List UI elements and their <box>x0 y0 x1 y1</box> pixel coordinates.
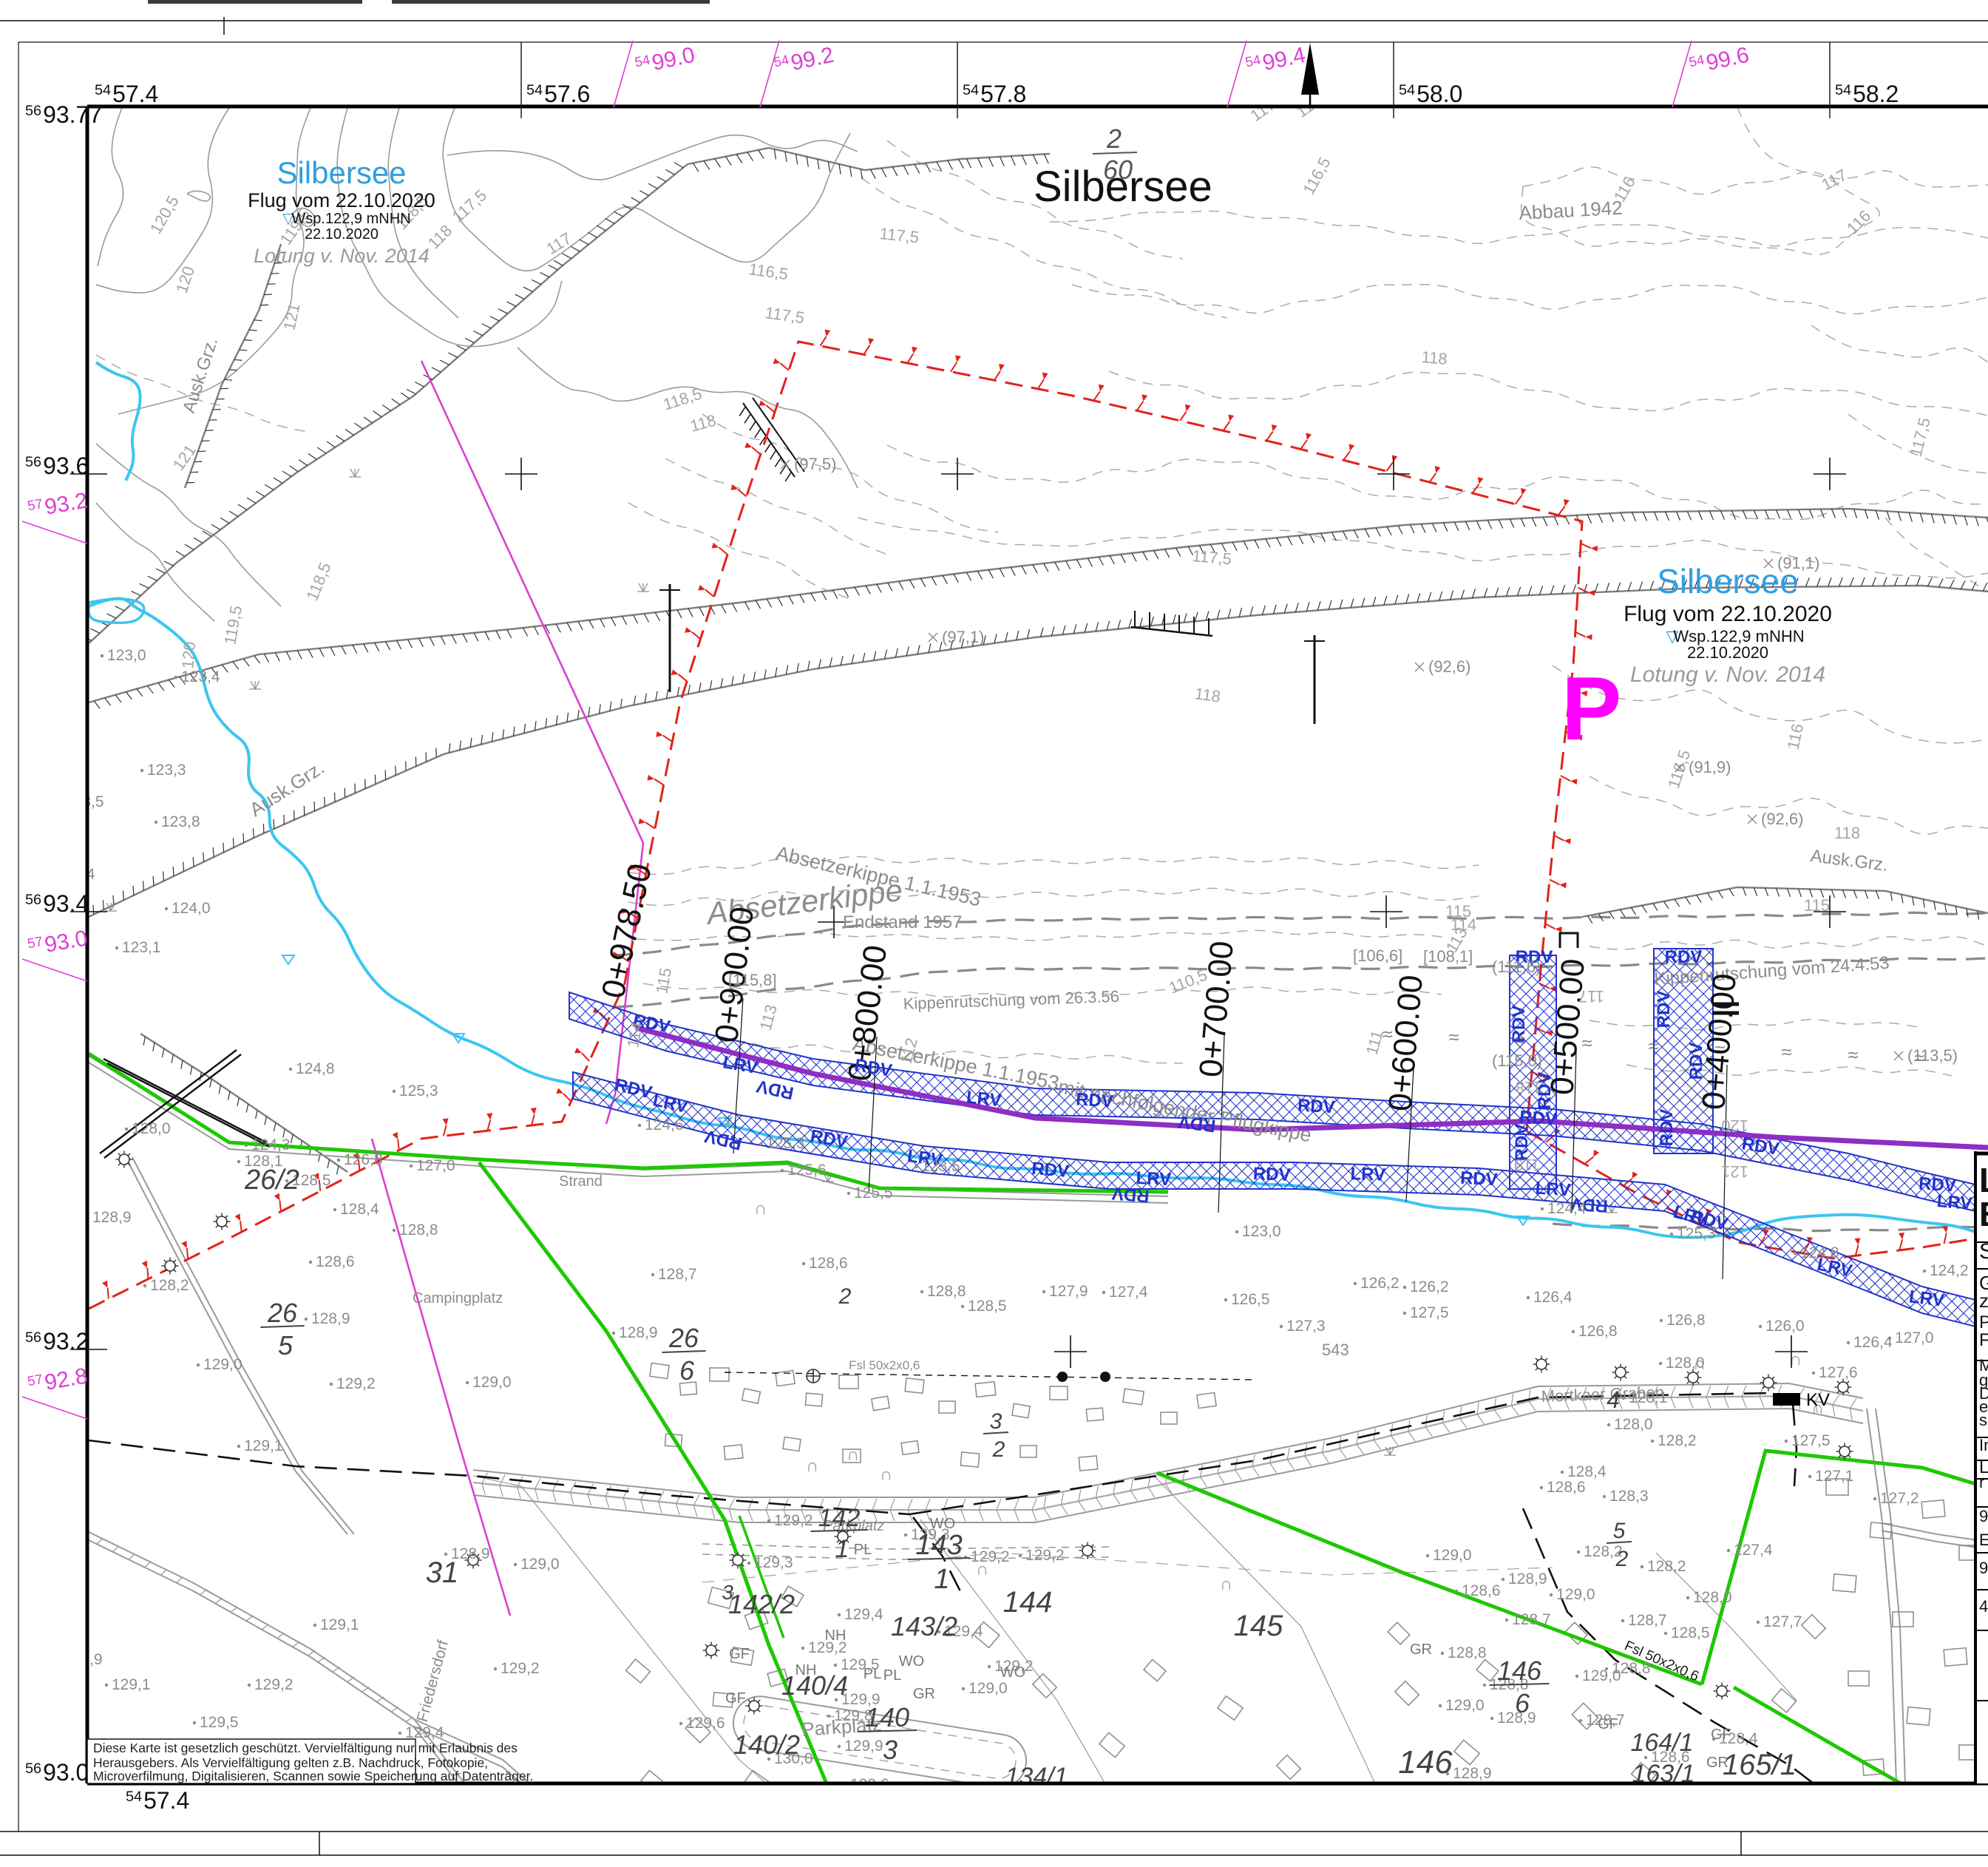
parcel-number: 3 <box>990 1409 1003 1434</box>
area-label: Strand <box>559 1173 603 1190</box>
band-label: RDV <box>1075 1089 1113 1111</box>
spot-height: 128,6 <box>316 1253 355 1270</box>
area-label: Fsl 50x2x0,6 <box>849 1358 920 1372</box>
title-block-fragment: P <box>1979 1312 1988 1332</box>
title-block-fragment: z <box>1979 1290 1988 1312</box>
station-label: 0+978.50 <box>595 861 659 1002</box>
grid-coordinate: 5792.8 <box>26 1363 89 1398</box>
water-level-date: 22.10.2020 <box>1687 643 1768 662</box>
spot-height: 127,4 <box>1109 1284 1148 1301</box>
spot-height: 127,3 <box>1286 1318 1326 1335</box>
area-label: 543 <box>1322 1341 1349 1359</box>
title-block-fragment: S <box>1979 1239 1988 1264</box>
title-block-fragment: s <box>1979 1411 1987 1429</box>
title-block-fragment: In <box>1979 1436 1988 1454</box>
parcel-number: 4 <box>1607 1386 1620 1413</box>
spot-height: 125,3 <box>399 1082 438 1099</box>
band-label: LRV <box>966 1088 1003 1111</box>
parcel-number: 2 <box>838 1284 852 1309</box>
contour-label: 120 <box>172 264 198 296</box>
water-level: Wsp.122,9 mNHN <box>291 211 410 227</box>
landuse-code: NH <box>866 1836 888 1852</box>
parcel-denominator: 2 <box>992 1437 1005 1462</box>
band-label: RDV <box>1297 1096 1335 1118</box>
water-level-date: 22.10.2020 <box>305 226 379 243</box>
spot-height: 129,9 <box>844 1738 883 1755</box>
elevation-point: (97,1) <box>942 628 984 646</box>
landuse-code: GF <box>729 1646 750 1662</box>
parcel-number: 146 <box>1398 1744 1453 1780</box>
spot-height: 129,2 <box>336 1375 376 1392</box>
spot-height: 128,6 <box>809 1255 848 1272</box>
title-block-fragment: L <box>1979 1161 1988 1199</box>
contour-label: 118,5 <box>302 560 334 603</box>
band-label: RDV <box>1657 1109 1677 1147</box>
area-label: Abbau 1942 <box>1519 197 1624 224</box>
spot-height: 126,2 <box>1360 1275 1400 1292</box>
spot-height: 128,2 <box>1647 1558 1686 1575</box>
kv-label: KV <box>1806 1390 1830 1410</box>
spot-height: 127,7 <box>1763 1613 1802 1630</box>
contour-label: 120 <box>178 641 199 670</box>
band-label: LRV <box>1936 1191 1973 1214</box>
spot-height: 128,9 <box>619 1324 658 1341</box>
grid-coordinate-row: 5693.77 <box>25 101 102 128</box>
band-label: RDV <box>1654 991 1674 1029</box>
svg-text:∩: ∩ <box>754 1199 767 1219</box>
fraction-bar <box>1093 152 1137 154</box>
area-label: Kippenrutschung vom 26.3.56 <box>903 987 1119 1013</box>
parcel-number: 26 <box>668 1323 699 1353</box>
elevation-point: (113,5) <box>1907 1046 1958 1065</box>
contour-label: 118 <box>1834 824 1860 842</box>
parcel-number: 31 <box>426 1556 459 1589</box>
contour-label: 117,5 <box>764 303 805 327</box>
grid-coordinate: 5458.0 <box>1399 81 1462 107</box>
band-label: RDV <box>1512 1124 1532 1162</box>
svg-text:∩: ∩ <box>806 1456 818 1476</box>
spot-height: 128,3 <box>1609 1488 1649 1505</box>
band-label: RDV <box>1509 1006 1529 1043</box>
spot-height: 128,9 <box>311 1310 350 1327</box>
contour-label: 117,5 <box>1907 416 1934 458</box>
spot-height: 128,0 <box>132 1120 171 1137</box>
parcel-number: 146 <box>804 1795 853 1827</box>
spot-height: 128,1 <box>1629 1389 1668 1406</box>
spot-height: 125,6 <box>787 1162 827 1179</box>
lake-title: Silbersee <box>1657 562 1799 600</box>
title-block-fragment: 9 <box>1979 1559 1988 1577</box>
grid-coordinate: 5793.2 <box>26 488 89 523</box>
band-label: LRV <box>1136 1168 1172 1190</box>
grid-coordinate: 5499.2 <box>772 42 835 79</box>
band-label: LRV <box>1350 1164 1385 1185</box>
elevation-point: [106,6] <box>1353 946 1402 965</box>
parcel-number: 143 <box>915 1530 962 1561</box>
spot-height: 127,0 <box>1895 1329 1934 1346</box>
spot-height: 129,1 <box>320 1616 359 1633</box>
spot-height: 129,4 <box>844 1606 883 1623</box>
contour-label: 111 <box>1363 1029 1387 1057</box>
spot-height: 126,8 <box>1666 1312 1706 1329</box>
contour-label: 121 <box>169 441 200 473</box>
spot-height: 126,4 <box>1533 1289 1573 1306</box>
grid-coordinate: 5693.4 <box>25 890 89 917</box>
elevation-point: (92,6) <box>1428 657 1470 676</box>
parcel-denominator: 2 <box>1615 1547 1629 1571</box>
spot-height: 127,9 <box>1049 1283 1088 1300</box>
spot-height: 128,8 <box>927 1283 966 1300</box>
grid-coordinate: 5457.4 <box>95 81 158 107</box>
spot-height: 123,1 <box>122 939 161 956</box>
spot-height: 129,0 <box>1433 1547 1472 1564</box>
spot-height: 125,3 <box>1677 1225 1716 1242</box>
spot-height: 126,4 <box>1853 1334 1893 1351</box>
spot-height: 128,4 <box>1567 1463 1607 1480</box>
spot-height: 125,3 <box>766 1135 805 1152</box>
landuse-code: LH <box>1172 1790 1191 1806</box>
spot-height: 128,0 <box>1666 1355 1705 1372</box>
copyright-line: Microverfilmung, Digitalisieren, Scannen… <box>93 1769 533 1783</box>
top-artifact-strip <box>148 0 362 4</box>
contour-label: 115 <box>1804 896 1830 915</box>
contour-label: 117,5 <box>449 186 490 226</box>
lake-title: Silbersee <box>277 155 406 190</box>
spot-height: 128,9 <box>92 1209 132 1226</box>
station-label: 0+600.00 <box>1382 974 1430 1113</box>
parcel-number: 165/1 <box>1723 1749 1797 1781</box>
parcel-number: 146 <box>1497 1656 1542 1686</box>
grid-coordinate: 5457.6 <box>526 81 590 107</box>
elevation-point: [115,8] <box>728 971 777 989</box>
area-label: Ausk.Grz. <box>1809 846 1889 875</box>
parcel-denominator: 6 <box>679 1355 695 1386</box>
spot-height: 128,2 <box>1658 1432 1697 1449</box>
svg-text:≈: ≈ <box>1448 1026 1459 1048</box>
grid-coordinate: 5458.2 <box>1835 81 1899 107</box>
grid-coordinate: 5693.6 <box>25 453 89 479</box>
spot-height: 129,0 <box>203 1356 242 1373</box>
parcel-number: 5 <box>1613 1519 1626 1543</box>
parcel-number: 3 <box>722 1581 733 1604</box>
contour-label: 117,5 <box>1192 546 1232 569</box>
parcel-number: 164/1 <box>1630 1729 1693 1757</box>
grid-coordinate: 5793.0 <box>26 926 89 960</box>
spot-height: 128,6 <box>1547 1479 1586 1496</box>
parcel-denominator: 1 <box>835 1535 849 1563</box>
spot-height: 129,3 <box>754 1554 793 1571</box>
spot-height: 127,1 <box>1815 1468 1854 1485</box>
grid-coordinate: 5693.2 <box>25 1328 89 1355</box>
sounding-note: Lotung v. Nov. 2014 <box>1630 663 1825 687</box>
spot-height: 129,2 <box>1025 1547 1065 1564</box>
spot-height: 124,2 <box>1930 1262 1969 1279</box>
grid-coordinate: 5499.4 <box>1244 42 1307 79</box>
parcel-number: 143/2 <box>891 1611 957 1641</box>
svg-text:∩: ∩ <box>880 1465 892 1485</box>
spot-height: 129,0 <box>1582 1667 1621 1684</box>
spot-height: 129,2 <box>994 1658 1034 1675</box>
spot-height: 129,2 <box>774 1512 813 1529</box>
spot-height: 124,0 <box>172 900 211 917</box>
spot-height: 123,3 <box>147 762 186 779</box>
spot-height: 129,6 <box>686 1715 725 1732</box>
contour-label: 120,5 <box>146 192 183 237</box>
headline-fraction-bottom: 60 <box>1103 155 1133 185</box>
spot-height: 123,0 <box>107 647 146 664</box>
band-label: RDV <box>1252 1164 1291 1185</box>
area-label: Endstand 1957 <box>843 912 962 932</box>
contour-label: 117 <box>543 228 574 258</box>
parcel-denominator: 1 <box>934 1564 949 1595</box>
landuse-code: WO <box>899 1653 924 1670</box>
spot-height: 124,8 <box>1800 1244 1839 1261</box>
spot-height: 128,2 <box>150 1277 189 1294</box>
spot-height: 126,8 <box>344 1151 383 1168</box>
spot-height: 128,5 <box>968 1298 1007 1315</box>
spot-height: 129,2 <box>501 1660 540 1677</box>
spot-height: 123,4 <box>181 668 220 685</box>
spot-height: 129,0 <box>968 1680 1008 1697</box>
contour-label: 114 <box>623 1020 646 1049</box>
contour-label: 115 <box>652 966 675 995</box>
spot-height: 128,4 <box>1719 1730 1758 1747</box>
spot-height: 126,0 <box>1765 1318 1805 1335</box>
contour-label: 113 <box>756 1003 781 1032</box>
spot-height: 127,4 <box>1734 1542 1773 1559</box>
spot-height: 128,7 <box>1512 1611 1551 1628</box>
contour-label: 119 <box>1514 1156 1540 1174</box>
svg-text:∩: ∩ <box>651 1783 663 1803</box>
spot-height: 125,5 <box>854 1185 893 1202</box>
elevation-point: (111,6) <box>1492 958 1541 976</box>
copyright-line: Diese Karte ist gesetzlich geschützt. Ve… <box>93 1741 518 1755</box>
parcel-denominator: 6 <box>1515 1688 1530 1718</box>
map-canvas[interactable]: ≈≈≈≈≈≈≈≈≈∩∩∩∩∩∩∩∩∩∩Absetzerkippe 1.1.195… <box>0 0 1988 1867</box>
elevation-point: (91,9) <box>1689 758 1731 776</box>
parcel-denominator: 3 <box>883 1735 898 1765</box>
spot-height: 123,8 <box>161 813 200 830</box>
svg-text:∩: ∩ <box>847 1445 859 1465</box>
contour-label: 118 <box>1516 1078 1541 1097</box>
parcel-number: 134/1 <box>1005 1763 1068 1791</box>
spot-height: 123,5 <box>921 1158 960 1175</box>
elevation-point: (115,0) <box>1492 1051 1542 1070</box>
spot-height: 129,0 <box>1556 1586 1595 1603</box>
contour-label: 117 <box>1578 987 1604 1006</box>
spot-height: 126,8 <box>1578 1323 1618 1340</box>
spot-height: 124,6 <box>645 1117 684 1134</box>
elevation-point: (97,5) <box>794 455 836 473</box>
landuse-code: PL <box>883 1667 901 1684</box>
landuse-code: GR <box>913 1686 935 1702</box>
parcel-denominator: 5 <box>278 1330 294 1361</box>
spot-height: 128,7 <box>658 1266 697 1283</box>
contour-label: 121 <box>1721 1162 1748 1181</box>
contour-label: 116 <box>1783 722 1807 752</box>
grid-coordinate: 5457.8 <box>963 81 1026 107</box>
parcel-number: 26 <box>267 1298 298 1328</box>
contour-label: 116,5 <box>1299 154 1334 197</box>
spot-height: 128,8 <box>1448 1644 1487 1661</box>
spot-height: 128,8 <box>399 1221 438 1239</box>
silbersee-legend-east: Silbersee Flug vom 22.10.2020 ▽ Wsp.122,… <box>1624 562 1832 687</box>
spot-height: 128,6 <box>1462 1582 1501 1599</box>
band-label: RDV <box>1665 947 1703 967</box>
map-content: ≈≈≈≈≈≈≈≈≈∩∩∩∩∩∩∩∩∩∩Absetzerkippe 1.1.195… <box>46 87 1988 1867</box>
landuse-code: GF <box>725 1690 746 1707</box>
landuse-code: PL <box>854 1542 872 1558</box>
contour-label: 120 <box>1721 1117 1748 1135</box>
grid-coordinate-row: 5693.0 <box>25 1759 89 1786</box>
title-block-fragment: B <box>1979 1195 1988 1233</box>
spot-height: 128,9 <box>1453 1765 1492 1782</box>
p-marker: P <box>1561 658 1621 759</box>
spot-height: 129,9 <box>64 1651 103 1668</box>
title-block-sliver: LBSGzPFMgDesInLr9E94 <box>1975 1151 1988 1783</box>
parcel-number: 142 <box>818 1504 861 1532</box>
parcel-number: 140/2 <box>733 1729 800 1760</box>
spot-height: 123,5 <box>65 793 104 810</box>
spot-height: 129,0 <box>472 1374 512 1391</box>
grid-coordinate: 5499.0 <box>633 42 696 79</box>
contour-label: 117,5 <box>878 224 920 246</box>
spot-height: 129,2 <box>254 1676 294 1693</box>
title-block-fragment: F <box>1979 1330 1988 1350</box>
contour-label: 116 <box>1843 206 1874 237</box>
spot-height: 129,2 <box>808 1639 847 1656</box>
grid-coordinate: 5693.77 <box>25 101 102 128</box>
spot-height: 127,2 <box>1880 1490 1919 1507</box>
spot-height: 127,5 <box>1410 1304 1449 1321</box>
band-label: RDV <box>1031 1159 1070 1182</box>
spot-height: 128,4 <box>340 1201 379 1218</box>
landuse-code: GR <box>1410 1641 1432 1658</box>
top-artifact-strip <box>392 0 710 4</box>
station-label: 0+700.00 <box>1193 940 1241 1079</box>
spot-height: 129,1 <box>244 1437 283 1454</box>
spot-height: 128,0 <box>1693 1589 1732 1606</box>
parcel-number: 141 <box>1177 1792 1227 1824</box>
parcel-number: 145 <box>1234 1610 1283 1642</box>
parcel-number: 140/4 <box>781 1670 848 1701</box>
spot-height: 129,0 <box>520 1556 560 1573</box>
spot-height: 129,1 <box>112 1676 151 1693</box>
spot-height: 123,4 <box>56 866 95 883</box>
title-block-fragment: E <box>1979 1531 1988 1549</box>
parcel-number: 144 <box>1003 1586 1053 1619</box>
spot-height: 124,3 <box>251 1136 291 1153</box>
grid-coordinate-row: 5693.4 <box>25 890 89 917</box>
spot-height: 129,5 <box>200 1714 239 1731</box>
area-label: Campingplatz <box>413 1290 503 1307</box>
spot-height: 128,9 <box>1508 1570 1547 1588</box>
parcel-number: 140 <box>865 1702 909 1732</box>
spot-height: 128,5 <box>1671 1624 1710 1641</box>
area-label: Friedersdorf <box>414 1639 452 1724</box>
spot-height: 128,7 <box>1586 1712 1625 1729</box>
copyright-line: Herausgebers. Als Vervielfältigung gelte… <box>93 1755 488 1770</box>
elevation-point: [108,1] <box>1423 947 1473 966</box>
contour-label: 121 <box>279 302 303 332</box>
contour-label: 118 <box>688 411 718 436</box>
copyright-box: Diese Karte ist gesetzlich geschützt. Ve… <box>87 1739 533 1783</box>
svg-text:≈: ≈ <box>1847 1043 1859 1066</box>
spot-height: 124,4 <box>1547 1200 1587 1217</box>
spot-height: 128,7 <box>1628 1612 1667 1629</box>
silbersee-legend-west: Silbersee Flug vom 22.10.2020 ▽ Wsp.122,… <box>248 155 435 267</box>
flight-date: Flug vom 22.10.2020 <box>248 189 435 211</box>
parcel-number: 26/2 <box>244 1165 299 1196</box>
spot-height: 129,2 <box>971 1548 1010 1565</box>
flight-date: Flug vom 22.10.2020 <box>1624 602 1832 626</box>
svg-text:≈: ≈ <box>1780 1040 1792 1063</box>
grid-coordinate-row: 5693.2 <box>25 1328 89 1355</box>
landuse-code: GF <box>685 1799 705 1815</box>
band-label: RDV <box>1686 1043 1706 1080</box>
grid-coordinate: 5499.6 <box>1687 42 1751 79</box>
grid-coordinate: 5457.4 <box>126 1787 189 1814</box>
band-label: LRV <box>1908 1287 1946 1311</box>
contour-label: 119,5 <box>220 604 245 646</box>
spot-height: 123,0 <box>1242 1223 1281 1240</box>
grid-coordinate-row: 5693.6 <box>25 453 89 479</box>
svg-text:∩: ∩ <box>1220 1574 1232 1594</box>
band-label: LRV <box>1535 1178 1571 1200</box>
elevation-point: (92,6) <box>1761 810 1803 828</box>
title-block-fragment: 4 <box>1979 1597 1988 1616</box>
spot-height: 126,2 <box>1410 1278 1449 1295</box>
sounding-note: Lotung v. Nov. 2014 <box>254 245 430 267</box>
title-block-fragment: r <box>1979 1473 1984 1491</box>
spot-height: 126,5 <box>1231 1291 1270 1308</box>
spot-height: 127,5 <box>1791 1432 1831 1449</box>
grid-coordinate: 5693.0 <box>25 1759 89 1786</box>
parcel-number: 27 <box>46 1225 69 1249</box>
title-block-fragment: 9 <box>1979 1507 1988 1525</box>
contour-label: 118,5 <box>661 384 705 413</box>
headline-fraction-top: 2 <box>1106 123 1122 154</box>
spot-height: 128,0 <box>1614 1416 1653 1433</box>
spot-height: 129,0 <box>1445 1697 1485 1714</box>
band-label: RDV <box>1459 1168 1498 1190</box>
parcel-number: 142/2 <box>728 1589 795 1619</box>
contour-label: 116,5 <box>747 260 789 283</box>
contour-label: 118 <box>1193 684 1221 706</box>
spot-height: 127,6 <box>1819 1364 1858 1381</box>
sheet-frame: 5457.45457.65457.85458.05458.25693.77569… <box>0 17 1988 1855</box>
spot-height: 127,0 <box>416 1157 455 1174</box>
spot-height: 124,8 <box>296 1060 335 1077</box>
contour-label: 118 <box>1421 348 1448 368</box>
